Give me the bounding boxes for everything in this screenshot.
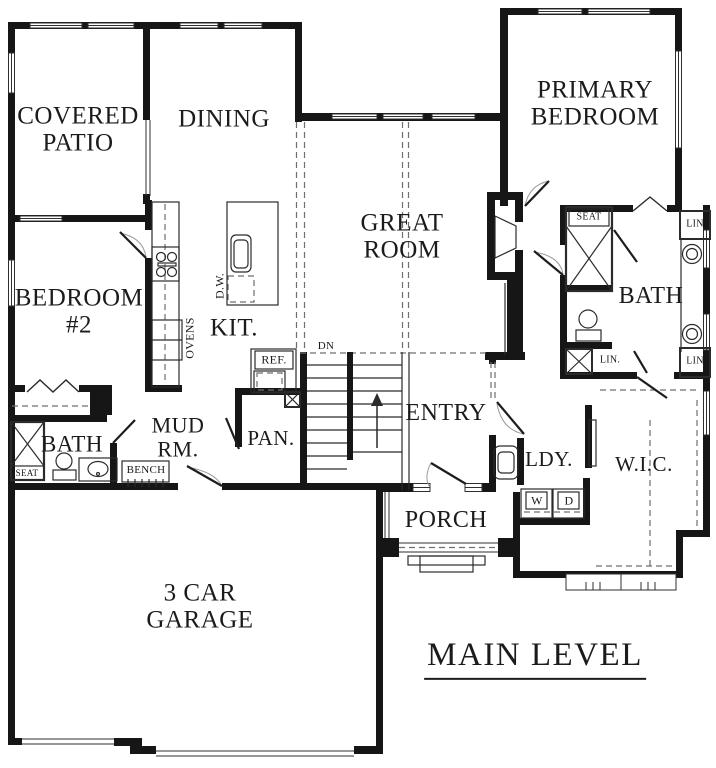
room-label-bath-left: BATH (41, 433, 103, 458)
room-label-garage: 3 CAR GARAGE (146, 580, 253, 634)
main-level-title: MAIN LEVEL (424, 638, 646, 680)
room-label-covered-patio: COVERED PATIO (17, 103, 139, 157)
floor-plan: COVERED PATIO DINING PRIMARY BEDROOM GRE… (0, 0, 716, 768)
room-label-primary-bedroom: PRIMARY BEDROOM (531, 77, 660, 131)
room-label-kitchen: KIT. (210, 316, 258, 343)
room-label-great-room: GREAT ROOM (360, 210, 443, 264)
room-label-bedroom-2: BEDROOM #2 (15, 285, 144, 339)
room-label-laundry: LDY. (525, 448, 573, 470)
fixture-label-washer: W (531, 495, 543, 508)
room-label-porch: PORCH (405, 508, 488, 534)
fixture-label-linen-bottom: LIN (686, 357, 704, 368)
fixture-label-seat-hall-shower: SEAT (16, 469, 39, 479)
fixture-label-stairs-down: DN (318, 341, 335, 353)
fixture-label-dryer: D (565, 495, 574, 508)
room-label-bath-primary: BATH (619, 284, 684, 310)
fixture-label-refrigerator: REF. (261, 354, 286, 367)
room-label-pantry: PAN. (247, 427, 294, 449)
fixture-label-seat-primary-shower: SEAT (576, 213, 601, 224)
room-label-entry: ENTRY (405, 401, 486, 427)
room-label-mud-room: MUD RM. (152, 413, 205, 460)
fixture-label-linen-closet: LIN. (600, 356, 620, 367)
fixture-label-dishwasher: D.W. (214, 273, 227, 299)
fixture-label-bench: BENCH (127, 465, 166, 477)
room-label-walk-in-closet: W.I.C. (615, 453, 673, 475)
fixture-label-linen-top: LIN (686, 220, 704, 231)
fixture-label-ovens: OVENS (184, 317, 197, 359)
room-label-dining: DINING (178, 107, 270, 134)
